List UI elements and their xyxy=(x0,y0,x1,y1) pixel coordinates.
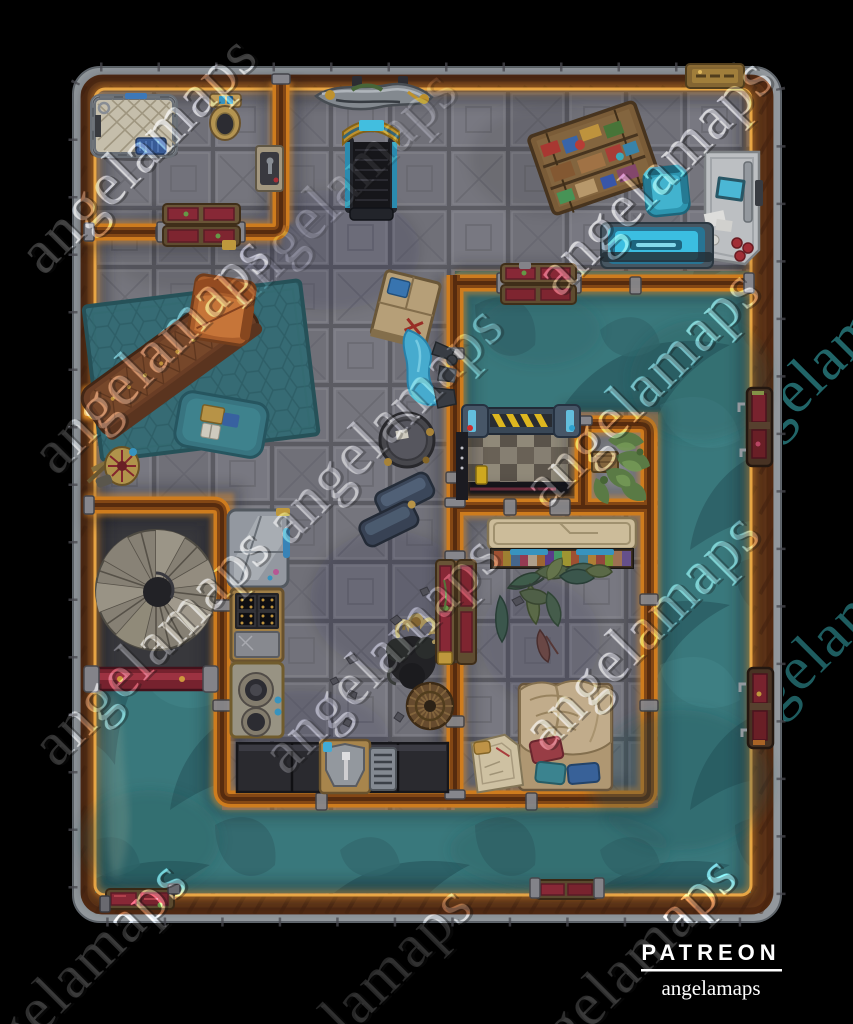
svg-text:angelamaps: angelamaps xyxy=(661,976,760,1000)
svg-text:PATREON: PATREON xyxy=(641,940,780,965)
